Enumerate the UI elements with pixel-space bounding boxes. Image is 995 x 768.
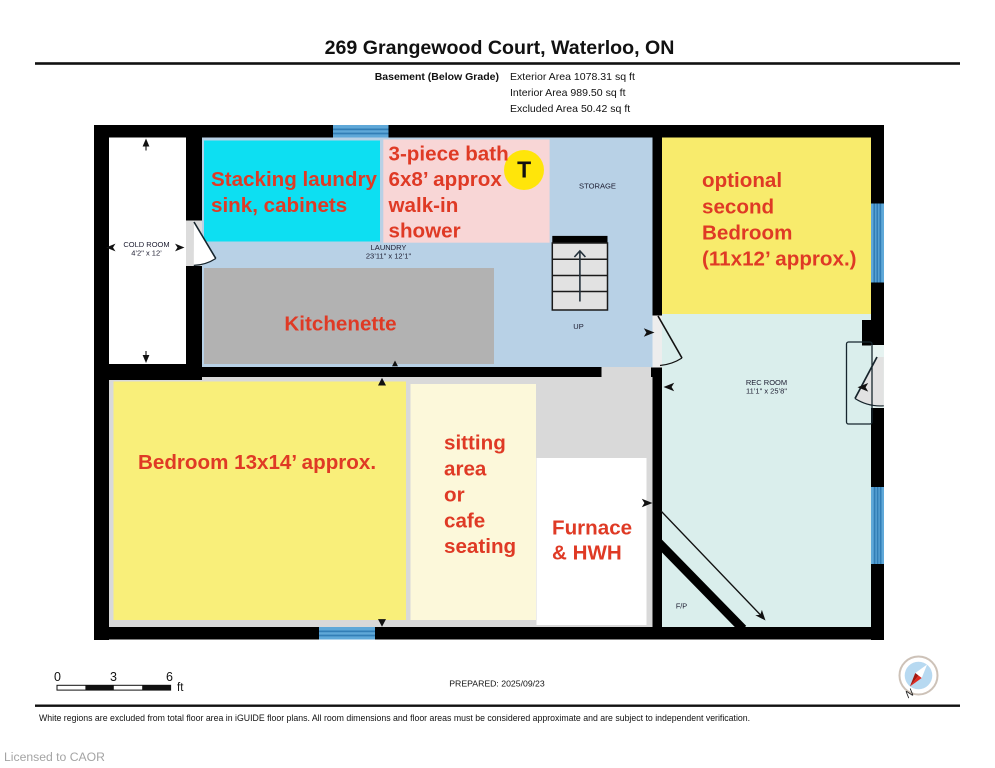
svg-text:F/P: F/P — [676, 602, 687, 611]
svg-text:PREPARED: 2025/09/23: PREPARED: 2025/09/23 — [449, 679, 545, 689]
svg-text:6x8’ approx: 6x8’ approx — [389, 168, 503, 191]
svg-text:Bedroom: Bedroom — [702, 221, 792, 244]
svg-text:Licensed to CAOR: Licensed to CAOR — [4, 750, 105, 764]
svg-text:T: T — [517, 157, 531, 183]
svg-text:walk-in: walk-in — [388, 194, 459, 217]
svg-text:Basement (Below Grade): Basement (Below Grade) — [375, 71, 499, 83]
svg-text:3-piece bath: 3-piece bath — [389, 143, 509, 166]
svg-text:White regions are excluded fro: White regions are excluded from total fl… — [39, 713, 750, 723]
svg-text:Bedroom 13x14’ approx.: Bedroom 13x14’ approx. — [138, 451, 376, 474]
svg-text:23’11" x 12’1": 23’11" x 12’1" — [366, 252, 412, 261]
svg-text:sink, cabinets: sink, cabinets — [211, 194, 347, 217]
svg-text:area: area — [444, 458, 487, 481]
svg-text:Kitchenette: Kitchenette — [284, 313, 396, 336]
svg-text:6: 6 — [166, 670, 173, 684]
svg-text:269 Grangewood Court, Waterloo: 269 Grangewood Court, Waterloo, ON — [325, 37, 675, 59]
svg-text:& HWH: & HWH — [552, 541, 622, 564]
svg-text:or: or — [444, 484, 465, 507]
svg-text:Furnace: Furnace — [552, 516, 632, 539]
svg-text:(11x12’ approx.): (11x12’ approx.) — [702, 248, 857, 271]
svg-text:0: 0 — [54, 670, 61, 684]
svg-text:UP: UP — [573, 322, 583, 331]
svg-text:optional: optional — [702, 169, 782, 192]
svg-text:Stacking laundry: Stacking laundry — [211, 168, 377, 191]
svg-text:4’2" x 12’: 4’2" x 12’ — [131, 249, 162, 258]
svg-text:shower: shower — [389, 220, 461, 243]
svg-text:Exterior Area 1078.31 sq ft: Exterior Area 1078.31 sq ft — [510, 71, 635, 83]
svg-text:cafe: cafe — [444, 510, 485, 533]
svg-text:11’1" x 25’8": 11’1" x 25’8" — [746, 387, 787, 396]
svg-text:Excluded Area 50.42 sq ft: Excluded Area 50.42 sq ft — [510, 103, 630, 115]
svg-text:3: 3 — [110, 670, 117, 684]
svg-text:second: second — [702, 195, 774, 218]
svg-text:seating: seating — [444, 535, 516, 558]
svg-text:Interior Area 989.50 sq ft: Interior Area 989.50 sq ft — [510, 87, 626, 99]
svg-text:ft: ft — [177, 682, 184, 694]
svg-text:STORAGE: STORAGE — [579, 182, 616, 191]
svg-text:sitting: sitting — [444, 431, 506, 454]
